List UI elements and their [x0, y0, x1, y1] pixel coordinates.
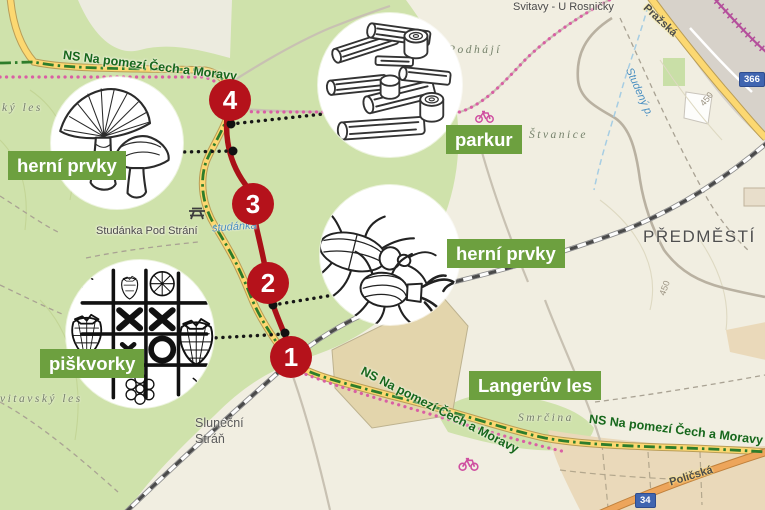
callout-mushrooms [51, 77, 183, 209]
marker-stop-2: 2 [247, 262, 289, 304]
road-shield-34: 34 [635, 493, 656, 508]
mushrooms-illustration [51, 77, 183, 209]
place-predmesti: PŘEDMĚSTÍ [643, 227, 756, 247]
marker-number: 2 [261, 268, 275, 299]
marker-stop-4: 4 [209, 79, 251, 121]
stag-beetles-illustration [320, 185, 460, 325]
bicycle-icon [458, 456, 479, 476]
callout-logs [318, 13, 462, 157]
label-herni-prvky-2: herní prvky [447, 239, 565, 268]
place-ky-les: ký les [2, 102, 43, 114]
place-slunecni-stran-line2: Stráň [195, 432, 225, 446]
label-herni-prvky-1: herní prvky [8, 151, 126, 180]
callout-beetles [320, 185, 460, 325]
marker-number: 1 [284, 342, 298, 373]
marker-number: 4 [223, 85, 237, 116]
place-slunecni-stran-line1: Sluneční [195, 416, 244, 430]
marker-stop-3: 3 [232, 183, 274, 225]
label-langeruv-les: Langerův les [469, 371, 601, 400]
trail-map: Svitavy - U Rosničky Pražská 366 450 Pod… [0, 0, 765, 510]
logs-parkour-illustration [318, 13, 462, 157]
marker-stop-1: 1 [270, 336, 312, 378]
place-studanka-pod-strani: Studánka Pod Strání [96, 225, 198, 237]
label-parkur: parkur [446, 125, 522, 154]
marker-number: 3 [246, 189, 260, 220]
place-smrcina: Smrčina [518, 412, 574, 424]
place-podhaji: Podhájí [448, 44, 502, 56]
tictactoe-strawberries-illustration [66, 260, 214, 408]
place-stvanice: Štvanice [529, 129, 588, 141]
picnic-table-icon [187, 206, 207, 226]
road-shield-366: 366 [739, 72, 765, 87]
place-vitavsky-les: vitavský les [0, 393, 83, 405]
callout-tictactoe [66, 260, 214, 408]
label-piskvorky: piškvorky [40, 349, 144, 378]
place-svitavy-u-rosnicky: Svitavy - U Rosničky [513, 1, 614, 13]
